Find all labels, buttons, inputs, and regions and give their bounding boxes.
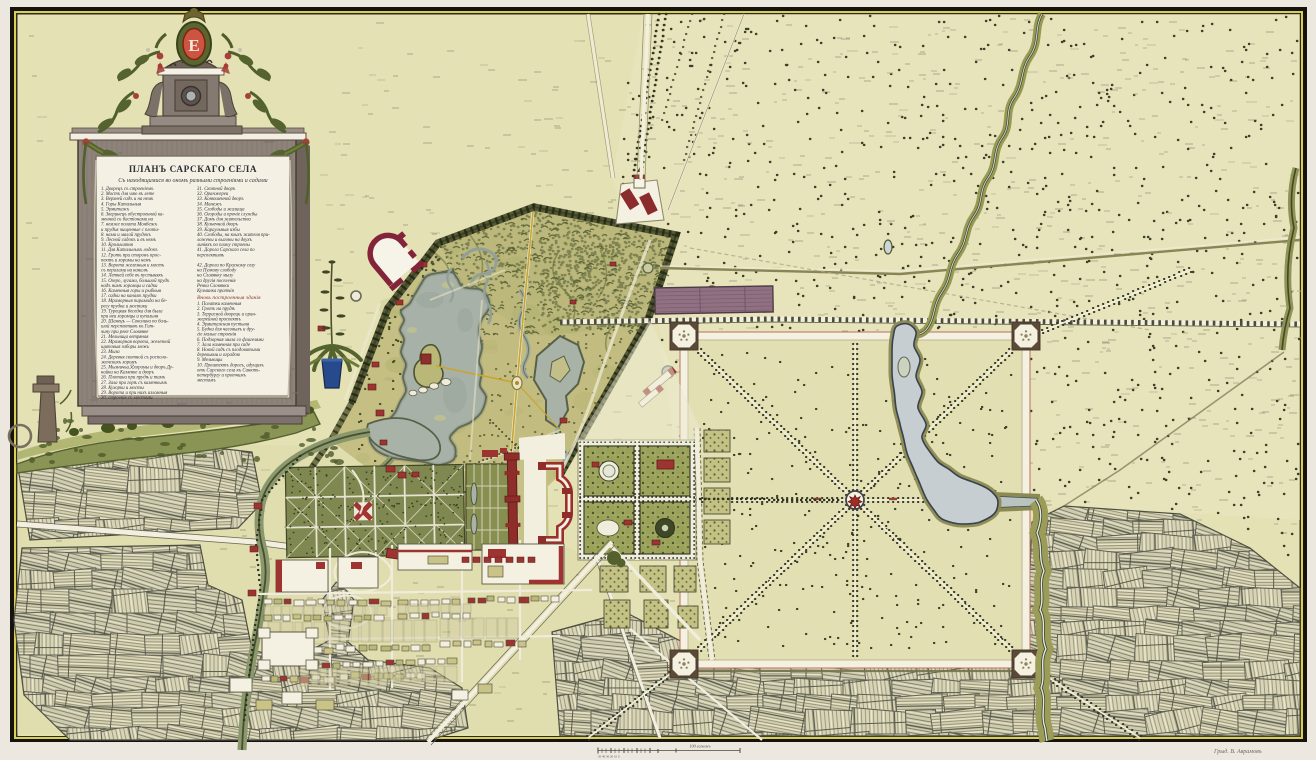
svg-text:менной съ бастіонами на: менной съ бастіонами на	[100, 217, 154, 223]
svg-text:Вновь построенныя зданія: Вновь построенныя зданія	[197, 294, 261, 301]
svg-text:перспективѣ: перспективѣ	[197, 253, 225, 258]
svg-text:8. нами и малой прудокъ: 8. нами и малой прудокъ	[101, 232, 151, 238]
svg-text:Кузминка протчія: Кузминка протчія	[196, 289, 235, 294]
svg-text:Грыд. В. Аврамовъ: Грыд. В. Аврамовъ	[1213, 748, 1262, 755]
svg-text:30. строенія съ мостами: 30. строенія съ мостами	[101, 396, 153, 401]
svg-text:3. Террасной дворецъ и оран-: 3. Террасной дворецъ и оран-	[197, 311, 257, 317]
svg-text:15. Озеро, лугами, большой пру: 15. Озеро, лугами, большой прудъ	[101, 278, 170, 284]
svg-text:ПЛАНЪ САРСКАГО СЕЛА: ПЛАНЪ САРСКАГО СЕЛА	[129, 164, 257, 174]
svg-text:22. Мраморная ворота, железной: 22. Мраморная ворота, железной	[101, 339, 171, 345]
svg-text:8. Новой садъ съ плодовитыми: 8. Новой садъ съ плодовитыми	[197, 347, 261, 353]
svg-text:6. Зверинецъ обустроенной ка-: 6. Зверинецъ обустроенной ка-	[101, 212, 164, 218]
svg-text:Е: Е	[188, 36, 199, 55]
svg-text:31. Скотной дворъ: 31. Скотной дворъ	[197, 186, 236, 192]
svg-text:жерейной проспектъ: жерейной проспектъ	[197, 316, 241, 322]
svg-text:25. Мызничьи又хоромы и дворъ Ду: 25. Мызничьи又хоромы и дворъ Ду-	[101, 365, 174, 371]
svg-text:50 40 30 20 10 0: 50 40 30 20 10 0	[598, 755, 620, 759]
svg-text:9. Лесной садокъ и въ немъ: 9. Лесной садокъ и въ немъ	[101, 237, 157, 243]
svg-text:найки на Каменке и дворъ: найки на Каменке и дворъ	[101, 370, 154, 376]
svg-text:местамъ: местамъ	[196, 379, 216, 384]
svg-text:33. Конюшенной дворъ: 33. Конюшенной дворъ	[197, 196, 244, 202]
svg-text:шой перспективѣ къ Гат-: шой перспективѣ къ Гат-	[101, 324, 155, 330]
svg-text:14. Летней себе въ пустыняхъ: 14. Летней себе въ пустыняхъ	[101, 273, 164, 279]
svg-text:3. Верхней садъ и на немъ: 3. Верхней садъ и на немъ	[101, 196, 154, 202]
svg-text:24. Деревня скотной съ росполо: 24. Деревня скотной съ росполо-	[101, 354, 168, 360]
svg-text:38. Кузнечной дворъ: 38. Кузнечной дворъ	[197, 222, 238, 228]
svg-text:Съ находящимися во ономъ разны: Съ находящимися во ономъ разными строені…	[118, 177, 267, 184]
svg-text:100 саженъ: 100 саженъ	[689, 744, 711, 749]
